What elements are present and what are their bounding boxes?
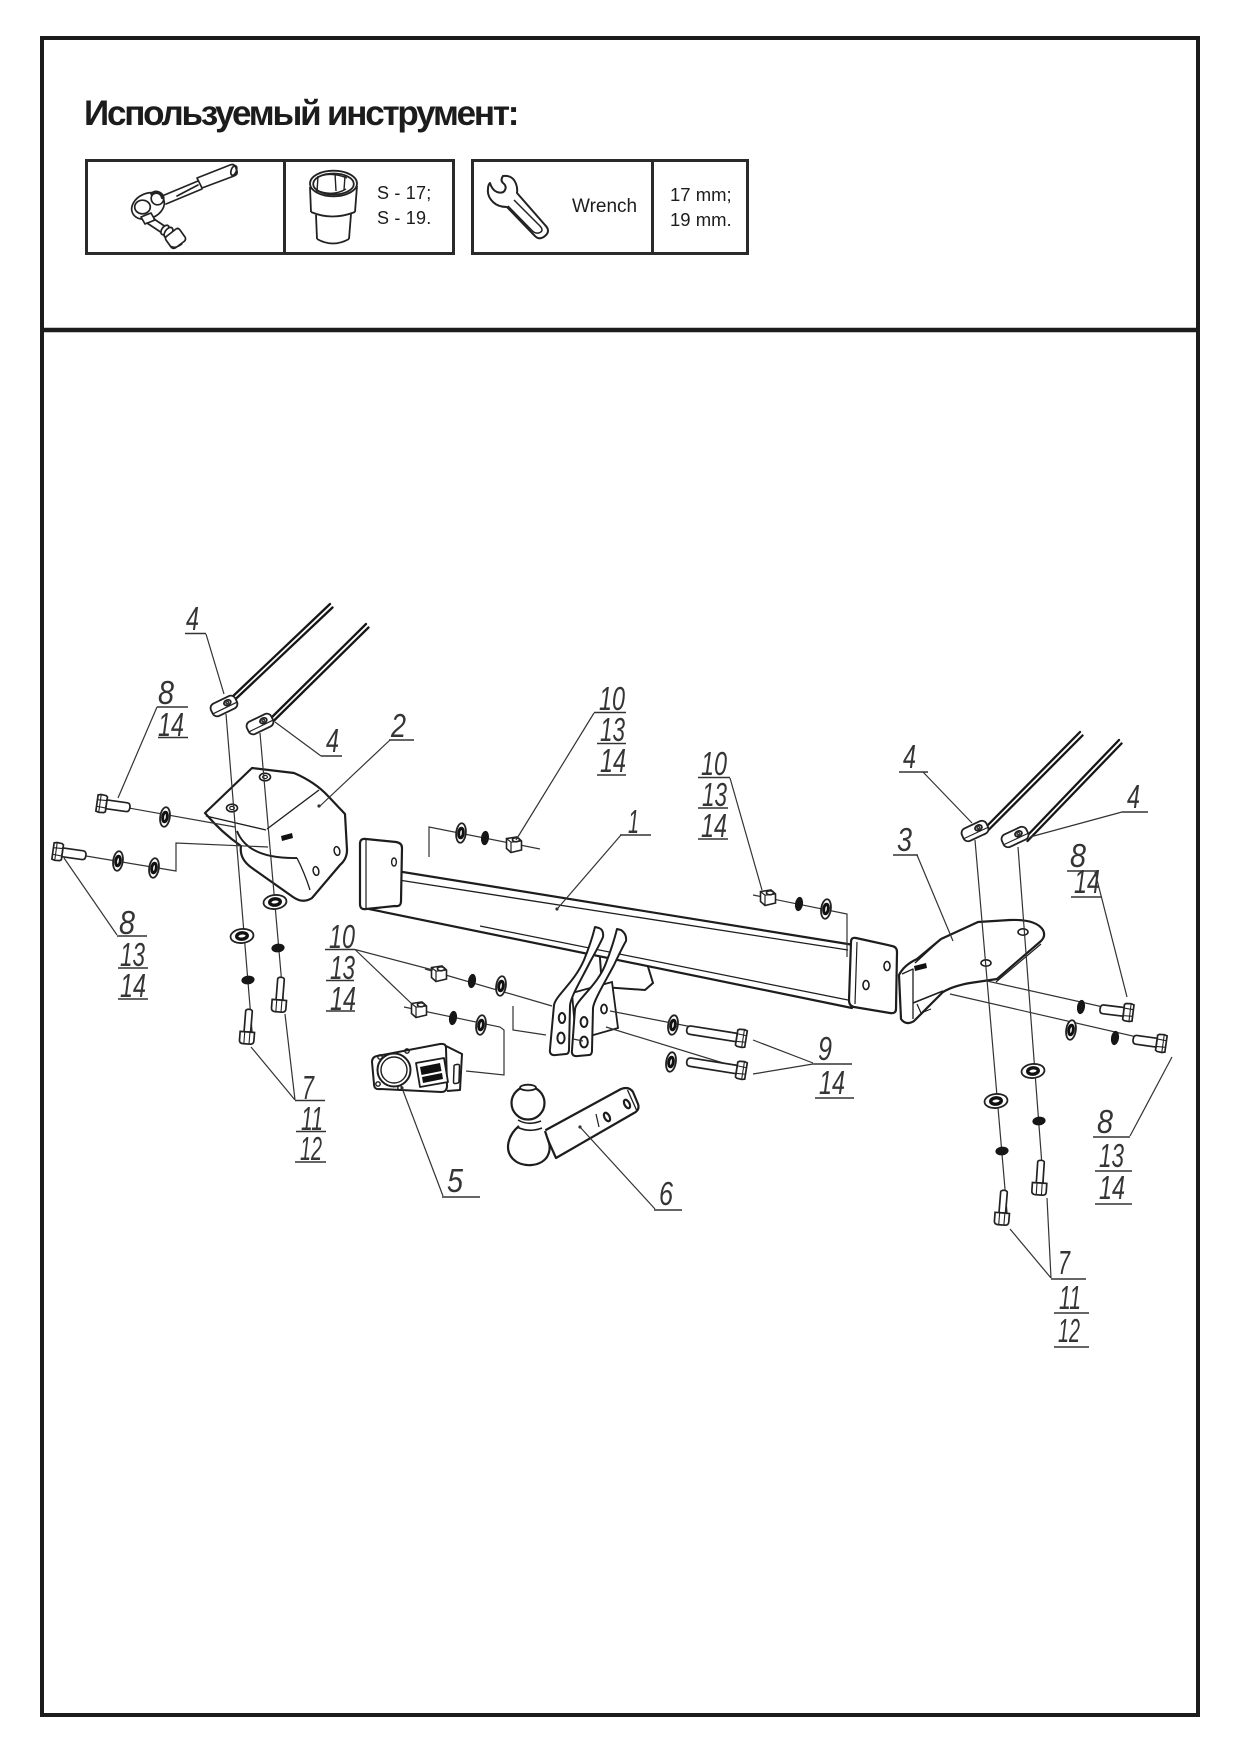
svg-text:S - 19.: S - 19. bbox=[377, 208, 431, 228]
svg-text:7: 7 bbox=[1058, 1244, 1071, 1281]
svg-text:4: 4 bbox=[1127, 778, 1140, 815]
svg-text:4: 4 bbox=[903, 738, 916, 775]
svg-text:5: 5 bbox=[447, 1162, 464, 1199]
svg-text:14: 14 bbox=[1099, 1169, 1125, 1206]
svg-text:Wrench: Wrench bbox=[572, 196, 637, 217]
svg-text:12: 12 bbox=[1058, 1312, 1080, 1349]
svg-text:19 mm.: 19 mm. bbox=[670, 209, 732, 230]
svg-text:6: 6 bbox=[659, 1175, 673, 1212]
svg-text:14: 14 bbox=[600, 742, 626, 779]
svg-text:4: 4 bbox=[326, 722, 339, 759]
svg-text:3: 3 bbox=[897, 821, 913, 858]
svg-text:8: 8 bbox=[1097, 1103, 1114, 1140]
svg-text:14: 14 bbox=[1074, 863, 1100, 900]
svg-text:11: 11 bbox=[1059, 1279, 1081, 1316]
svg-text:17 mm;: 17 mm; bbox=[670, 184, 732, 205]
svg-text:9: 9 bbox=[818, 1030, 832, 1067]
svg-text:2: 2 bbox=[390, 707, 406, 744]
svg-text:4: 4 bbox=[186, 600, 199, 637]
svg-text:14: 14 bbox=[819, 1064, 845, 1101]
svg-text:Используемый инструмент:: Используемый инструмент: bbox=[84, 94, 517, 133]
svg-text:S - 17;: S - 17; bbox=[377, 183, 431, 203]
